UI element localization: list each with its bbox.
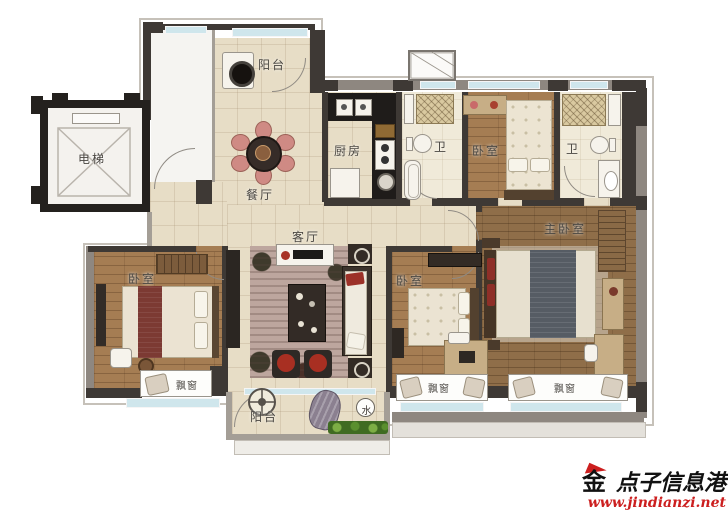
table-item: [298, 321, 304, 327]
label-elevator: 电梯: [78, 150, 106, 167]
door-gap-bath-b: [584, 198, 610, 206]
kitchen-counter-top: [328, 93, 396, 121]
deck-strip: [392, 412, 644, 422]
label-bath-a: 卫: [434, 138, 448, 155]
coffee-table: [288, 284, 326, 342]
flower-pot: [470, 101, 478, 109]
side-table-ring: [354, 362, 370, 378]
decor-red: [281, 251, 290, 260]
master-bed-pillow-red: [487, 284, 495, 306]
wall-bath-b-right: [622, 92, 636, 202]
bedroom-left-headboard: [212, 286, 219, 358]
label-bay-right: 飘窗: [554, 380, 576, 395]
bath-a-toilet-bowl: [413, 134, 432, 153]
tv: [293, 250, 323, 259]
side-table: [348, 358, 372, 378]
master-stool: [584, 344, 598, 362]
wall-right-seg2: [636, 196, 647, 210]
wall-balcony-bottom: [226, 434, 390, 440]
table-item: [309, 301, 315, 307]
wall-mb-bottom-right: [626, 386, 646, 398]
bath-a-toilet-tank: [406, 137, 413, 151]
ac-platform: [408, 50, 456, 81]
master-dresser: [602, 278, 624, 330]
window-balcony-top: [232, 28, 308, 37]
watermark-url: www.jindianzi.net: [582, 496, 726, 510]
deck-light: [392, 422, 646, 438]
table-item: [296, 293, 303, 300]
wall-bl-bottom-left: [86, 388, 142, 398]
bedroom-left-wardrobe: [156, 254, 208, 274]
spice-rack: [375, 124, 395, 138]
sink-drain: [360, 104, 366, 110]
wall-entry-right: [212, 30, 215, 182]
master-bed-runner: [530, 250, 576, 338]
bedroom-mid-wardrobe: [428, 253, 482, 267]
burner: [381, 156, 389, 164]
sink-drain: [341, 104, 347, 110]
planter-box: [328, 421, 388, 434]
dresser-item: [609, 287, 618, 296]
kitchen-counter-right: [372, 121, 396, 199]
bedroom-left-sideboard: [96, 284, 106, 346]
hall-floor: [150, 182, 227, 250]
bedroom-mid-headboard: [470, 288, 479, 346]
label-master-bedroom: 主卧室: [544, 220, 586, 237]
stove: [375, 140, 395, 170]
side-table-ring: [354, 248, 370, 264]
master-wardrobe: [598, 210, 626, 272]
sofa: [342, 266, 372, 356]
dining-table: [246, 136, 282, 172]
armchair-red: [272, 350, 300, 378]
bedroom-top-bed: [506, 100, 552, 190]
label-bath-b: 卫: [566, 140, 580, 157]
bedroom-left-pillow: [194, 291, 208, 318]
bedroom-top-pillow: [508, 158, 528, 172]
kitchen-cabinet: [330, 168, 360, 198]
vanity-sink: [604, 171, 618, 191]
watermark: 金 点子信息港 www.jindianzi.net: [582, 464, 726, 510]
bath-b-vanity: [598, 160, 620, 198]
balcony-step: [234, 440, 390, 455]
side-table: [348, 244, 372, 264]
bath-a-bathtub: [404, 160, 421, 200]
wall-balcony-top-right: [310, 30, 325, 93]
wall-right-outer: [636, 88, 647, 418]
label-kitchen: 厨房: [334, 142, 362, 159]
kitchen-sink: [355, 99, 372, 116]
armchair-seat: [309, 354, 327, 372]
bath-b-toilet-tank: [609, 138, 616, 152]
window-bay-right: [510, 402, 622, 412]
bay-cushion: [462, 376, 486, 399]
wall-entry-dining-stub: [196, 180, 212, 204]
bedroom-top-footboard: [504, 190, 554, 200]
label-bedroom-mid: 卧室: [396, 272, 424, 289]
bedroom-mid-pillow: [458, 292, 470, 315]
dining-table-set: [234, 124, 290, 180]
armchair-seat: [277, 354, 295, 372]
sofa-pillow-red: [345, 272, 364, 286]
media-console: [276, 244, 334, 266]
wall-living-right: [386, 246, 392, 392]
wall-balcony-left: [226, 392, 232, 438]
desk-laptop: [459, 351, 475, 363]
master-bed-pillow-red: [487, 258, 495, 280]
wall-right-seg1: [636, 88, 647, 126]
bedroom-mid-chair: [448, 332, 470, 344]
wall-bm-bottom-mid: [486, 386, 508, 398]
bath-a-shower-mat: [416, 94, 454, 124]
water-meter-label: 水: [357, 402, 376, 417]
master-nightstand: [482, 238, 500, 248]
washing-machine: [222, 52, 254, 89]
bedroom-top-desk: [463, 95, 507, 115]
window-entry-top: [165, 26, 207, 34]
wall-hall-left: [147, 212, 152, 250]
label-dining: 餐厅: [246, 186, 274, 203]
bath-b-toilet-bowl: [590, 136, 609, 154]
label-balcony-top: 阳台: [258, 56, 286, 73]
bath-b-cabinet: [608, 94, 621, 126]
bedroom-left-nightstand: [110, 348, 132, 368]
bathtub-inner: [408, 164, 419, 198]
bath-b-shower-mat: [562, 94, 606, 126]
bay-cushion: [600, 376, 624, 399]
bedroom-left-runner: [138, 286, 162, 358]
dining-table-center: [255, 145, 271, 161]
window-bay-mid: [400, 402, 484, 412]
sofa-throw: [346, 332, 367, 351]
flower-pot: [490, 101, 498, 109]
label-balcony-bottom: 阳台: [250, 408, 278, 425]
washing-machine-drum: [229, 61, 255, 87]
wall-bedroom-bath-b: [554, 92, 560, 202]
label-bedroom-left: 卧室: [128, 270, 156, 287]
label-bay-mid: 飘窗: [428, 380, 450, 395]
bedroom-mid-desk: [444, 340, 488, 376]
wall-bl-left-outer: [86, 246, 94, 396]
wall-top-seg3: [548, 80, 568, 91]
armchair-red: [304, 350, 332, 378]
ac-platform-cross: [410, 52, 454, 79]
kitchen-sink: [336, 99, 353, 116]
wall-kitchen-bath: [396, 92, 402, 202]
floor-plan: 水 电梯 阳台 餐厅 厨房 卫 卧室 卫 主卧室 客厅 卧室 卧室 阳台 飘窗 …: [0, 0, 728, 514]
burner: [381, 144, 389, 152]
bedroom-mid-cabinet: [392, 328, 404, 358]
tv-cabinet: [226, 250, 240, 348]
bath-a-cabinet: [404, 94, 414, 124]
window-top-2: [468, 81, 540, 89]
site-logo-icon: 金: [582, 464, 612, 494]
bedroom-left-pillow: [194, 322, 208, 349]
window-bay-left: [126, 398, 220, 408]
window-top-3: [570, 81, 608, 89]
label-bedroom-top: 卧室: [472, 142, 500, 159]
table-item: [311, 327, 317, 333]
watermark-site-name: 点子信息港: [616, 472, 726, 494]
pot: [377, 173, 395, 191]
bedroom-top-pillow: [530, 158, 550, 172]
water-meter-badge: 水: [356, 398, 375, 417]
logo-char: 金: [582, 470, 606, 494]
wall-top-seg1: [324, 80, 338, 91]
label-living: 客厅: [292, 228, 320, 245]
label-bay-left: 飘窗: [176, 377, 198, 392]
